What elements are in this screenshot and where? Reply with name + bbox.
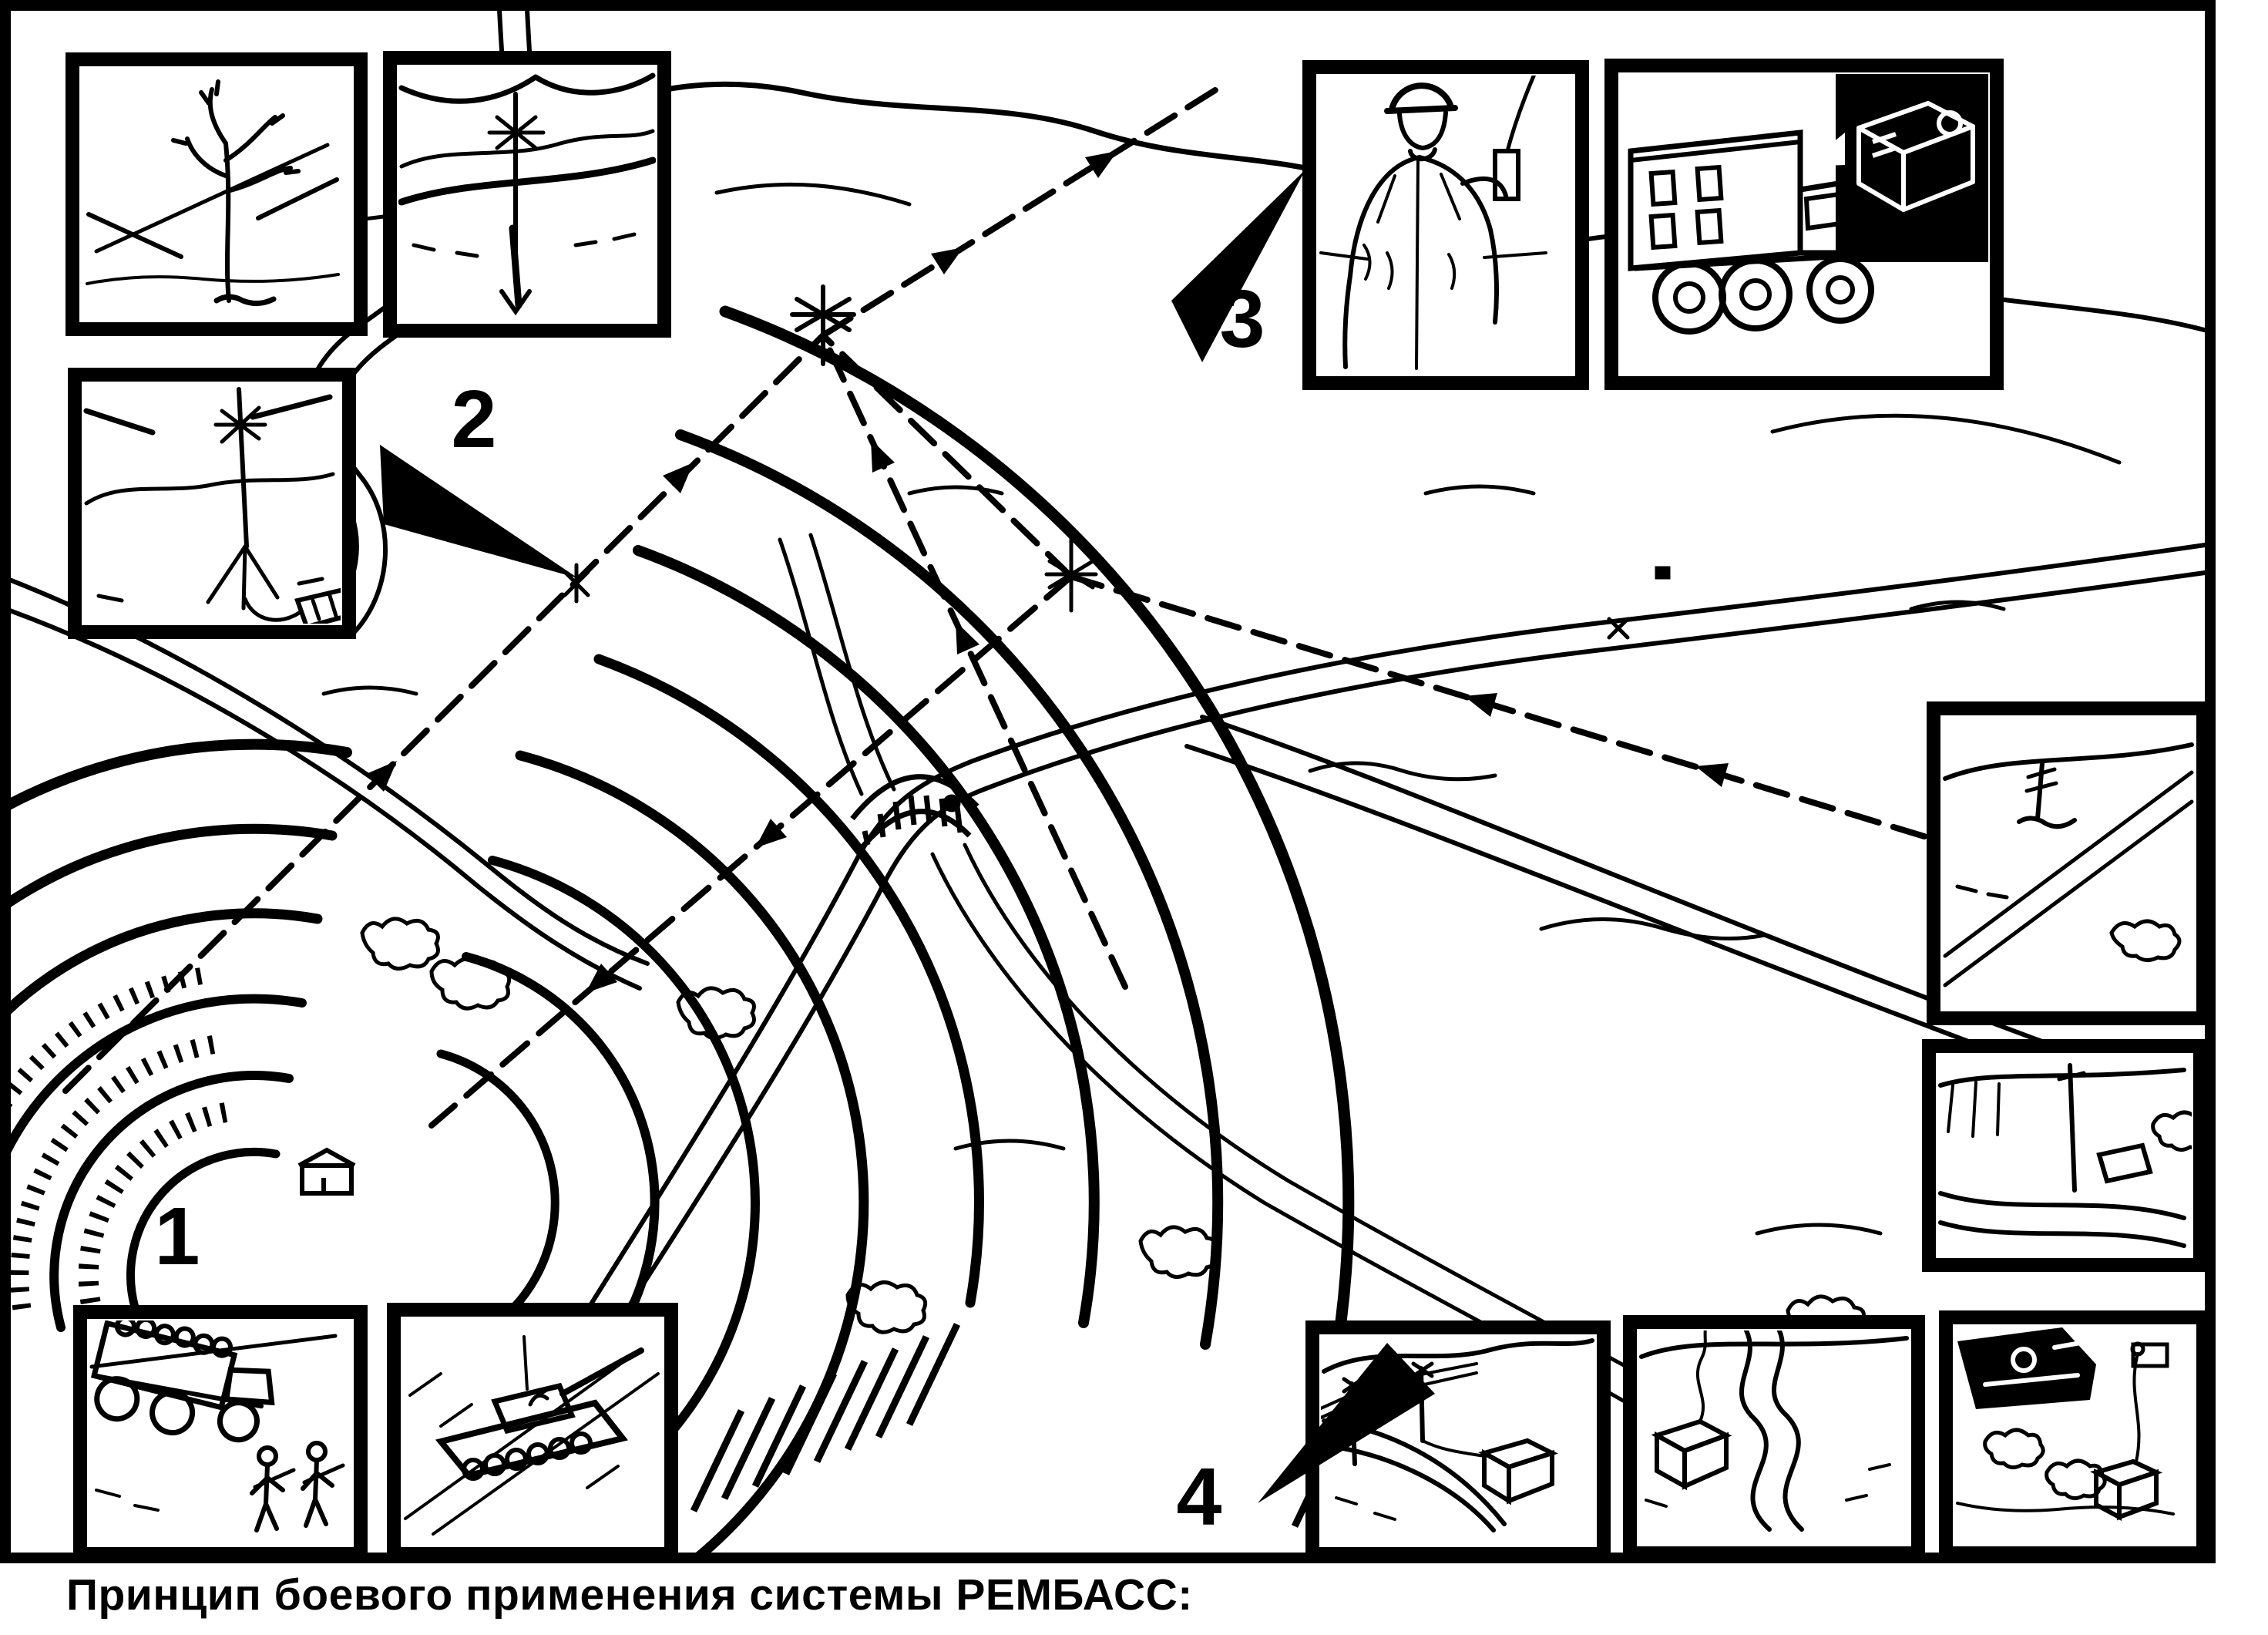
panel-troop-truck xyxy=(80,1310,361,1554)
signal-link-line xyxy=(823,335,1071,577)
panel-operator xyxy=(1309,67,1582,383)
panel-tank xyxy=(394,1310,671,1554)
callout-1-label: 1 xyxy=(155,1191,200,1282)
diagram-art: 1 2 3 4 xyxy=(0,0,2268,1635)
panel-control-truck xyxy=(1611,66,1997,383)
signal-link-line xyxy=(1071,577,1924,836)
callout-4-label: 4 xyxy=(1177,1452,1222,1542)
command-post-icon xyxy=(299,1150,354,1193)
rembass-diagram: 1 2 3 4 xyxy=(0,0,2268,1635)
panel-repeater-box xyxy=(1630,1321,1918,1553)
panel-sensor-on-tree xyxy=(72,59,361,329)
sensor-marker-icon xyxy=(565,565,1668,810)
rembass-figure: 1 2 3 4 Принцип боевого применения систе… xyxy=(0,0,2268,1635)
figure-caption: Принцип боевого применения системы РЕМБА… xyxy=(66,1569,1193,1620)
callout-2-label: 2 xyxy=(452,374,497,465)
panel-roadside-sensor xyxy=(1929,1046,2211,1265)
panel-field-antenna xyxy=(1934,708,2203,1018)
signal-link-line xyxy=(823,89,1218,335)
callout-3-label: 3 xyxy=(1220,274,1265,365)
panel-tank-sensor xyxy=(1946,1317,2203,1553)
panel-relay-antenna xyxy=(75,375,359,632)
panel-buried-sensor xyxy=(390,58,664,331)
